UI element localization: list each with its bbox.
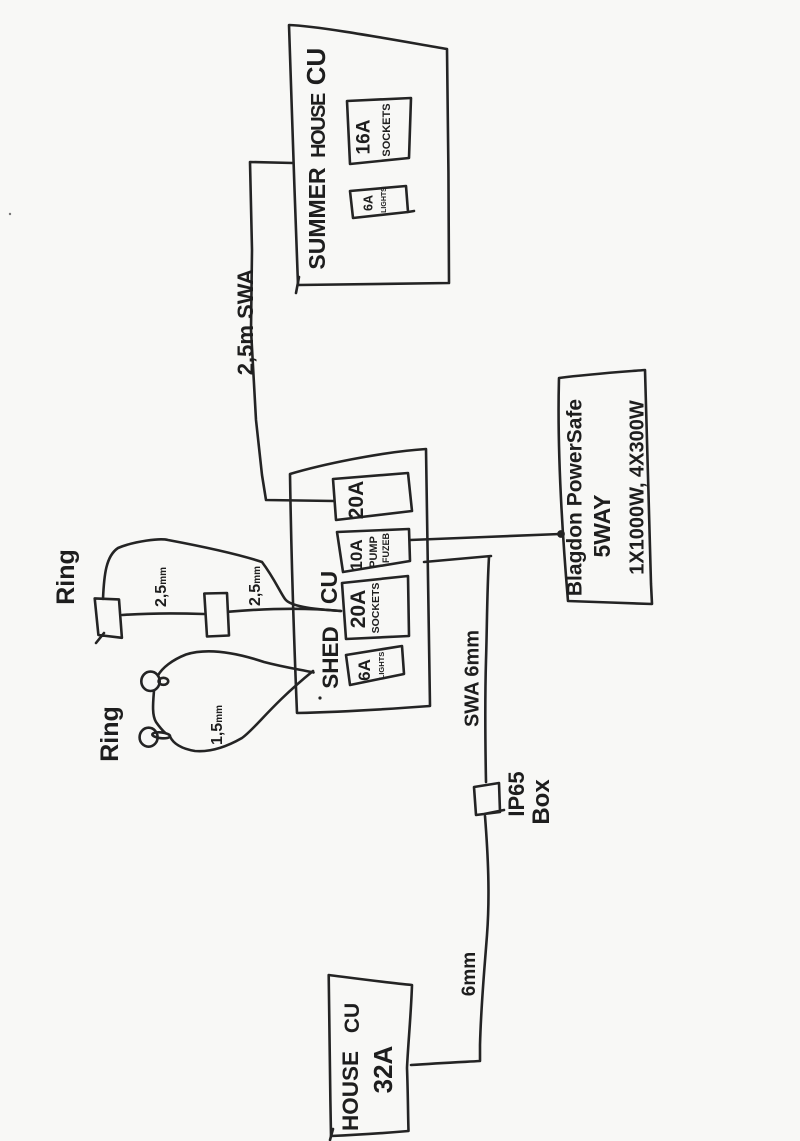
svg-text:FUZEB: FUZEB (381, 533, 391, 563)
svg-text:SOCKETS: SOCKETS (381, 103, 393, 156)
svg-text:CU: CU (301, 48, 331, 86)
svg-text:SHED: SHED (318, 626, 343, 689)
svg-text:20A: 20A (345, 481, 368, 520)
svg-text:5WAY: 5WAY (589, 494, 615, 557)
svg-text:Ring: Ring (96, 706, 124, 762)
svg-text:32A: 32A (368, 1045, 398, 1093)
svg-text:HOUSE: HOUSE (338, 1051, 363, 1131)
svg-text:SUMMER: SUMMER (304, 167, 330, 270)
svg-text:16A: 16A (354, 119, 375, 154)
svg-text:CU: CU (316, 571, 342, 604)
svg-text:6A: 6A (362, 195, 376, 211)
svg-text:1X1000W, 4X300W: 1X1000W, 4X300W (627, 400, 649, 575)
svg-text:HOUSE: HOUSE (308, 93, 330, 158)
svg-text:10A: 10A (347, 539, 366, 570)
svg-text:6A: 6A (355, 659, 374, 681)
svg-text:Blagdon PowerSafe: Blagdon PowerSafe (564, 399, 587, 596)
svg-text:PUMP: PUMP (368, 536, 380, 568)
svg-text:20A: 20A (347, 590, 370, 629)
svg-text:LIGHTS: LIGHTS (381, 187, 388, 213)
svg-text:2,5m SWA: 2,5m SWA (233, 269, 258, 375)
svg-text:6mm: 6mm (459, 952, 480, 996)
svg-text:LIGHTS: LIGHTS (377, 652, 386, 680)
svg-text:CU: CU (341, 1003, 364, 1033)
svg-text:SWA 6mm: SWA 6mm (462, 630, 484, 727)
svg-text:IP65: IP65 (504, 771, 529, 816)
svg-text:SOCKETS: SOCKETS (370, 583, 382, 634)
svg-text:Ring: Ring (52, 549, 80, 605)
svg-text:Box: Box (528, 779, 555, 825)
